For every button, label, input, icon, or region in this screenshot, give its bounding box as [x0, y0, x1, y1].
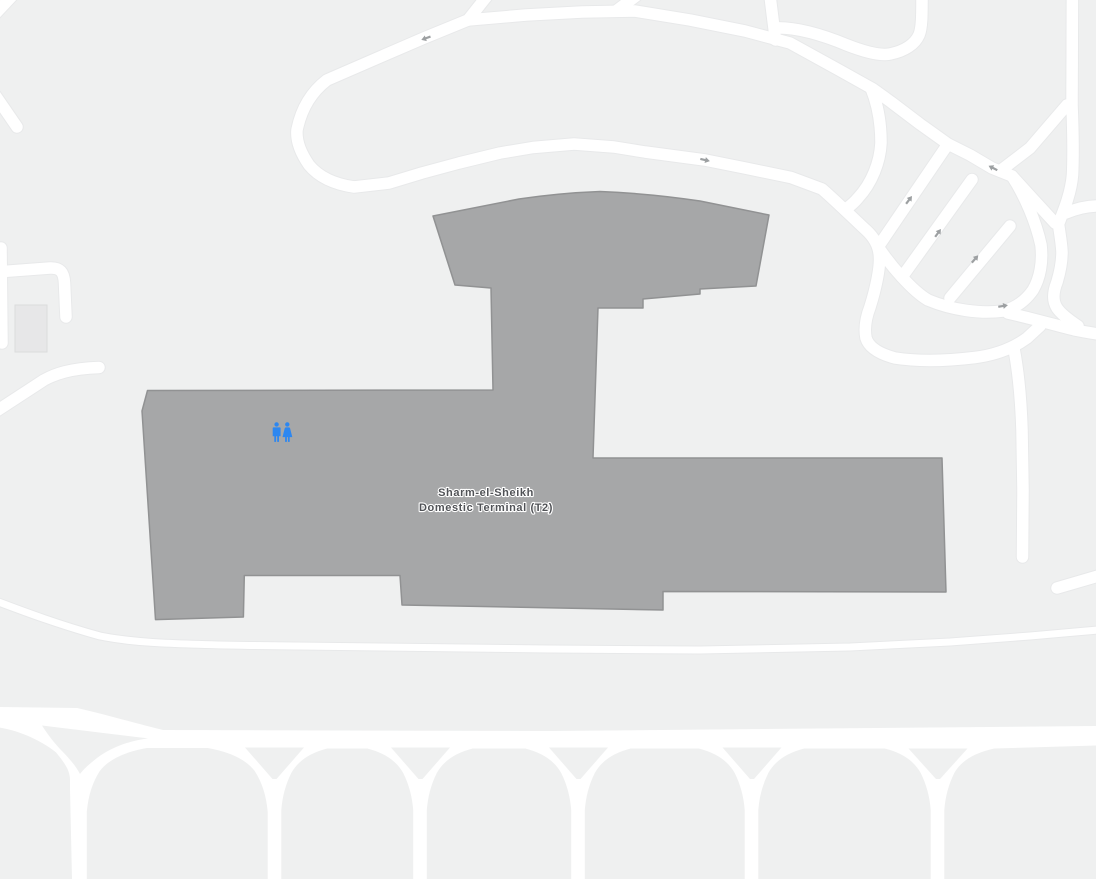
svg-text:Sharm-el-Sheikh: Sharm-el-Sheikh [438, 487, 534, 499]
svg-text:Domestic Terminal (T2): Domestic Terminal (T2) [419, 502, 553, 514]
